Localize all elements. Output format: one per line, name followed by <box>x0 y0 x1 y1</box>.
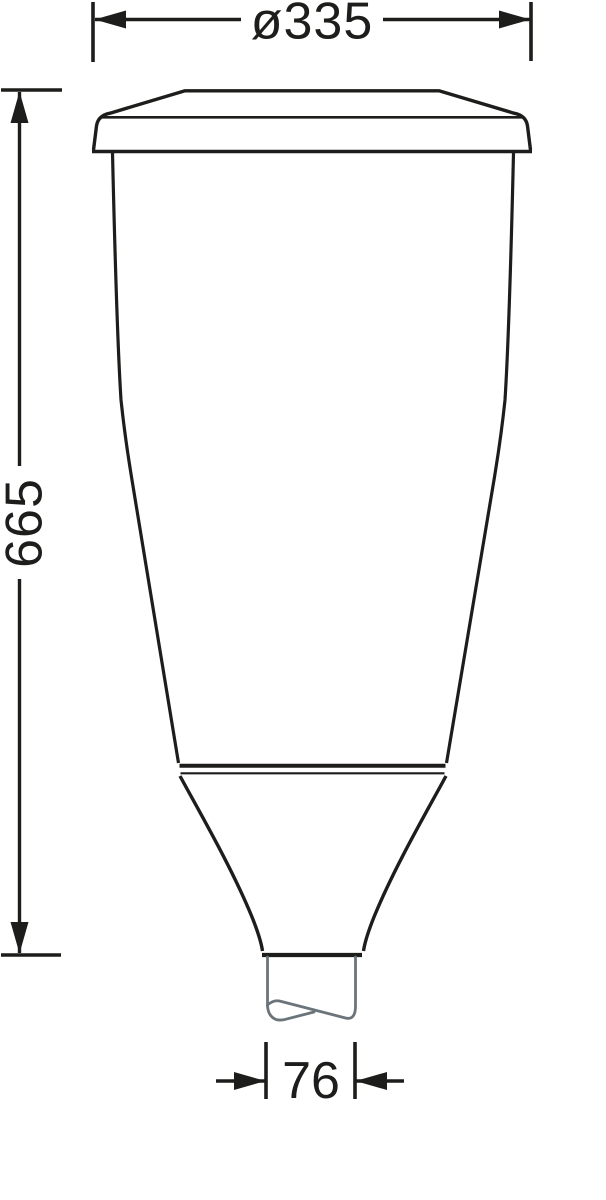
svg-text:76: 76 <box>282 1052 340 1110</box>
svg-text:665: 665 <box>0 478 54 568</box>
svg-text:ø335: ø335 <box>251 0 374 51</box>
